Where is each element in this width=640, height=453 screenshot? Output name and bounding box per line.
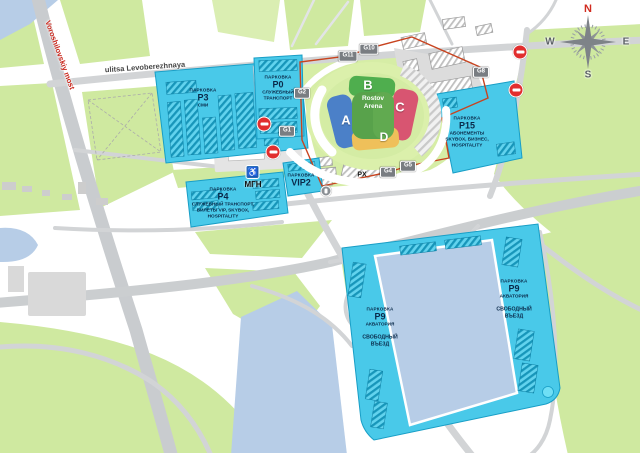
- map-canvas: [0, 0, 640, 453]
- parking-p9-complex: [342, 224, 560, 440]
- parking-p0-area: [254, 55, 304, 139]
- stadium-parking-map[interactable]: Voroshilovskiy most ulitsa Levoberezhnay…: [0, 0, 640, 453]
- small-pool: [543, 387, 554, 398]
